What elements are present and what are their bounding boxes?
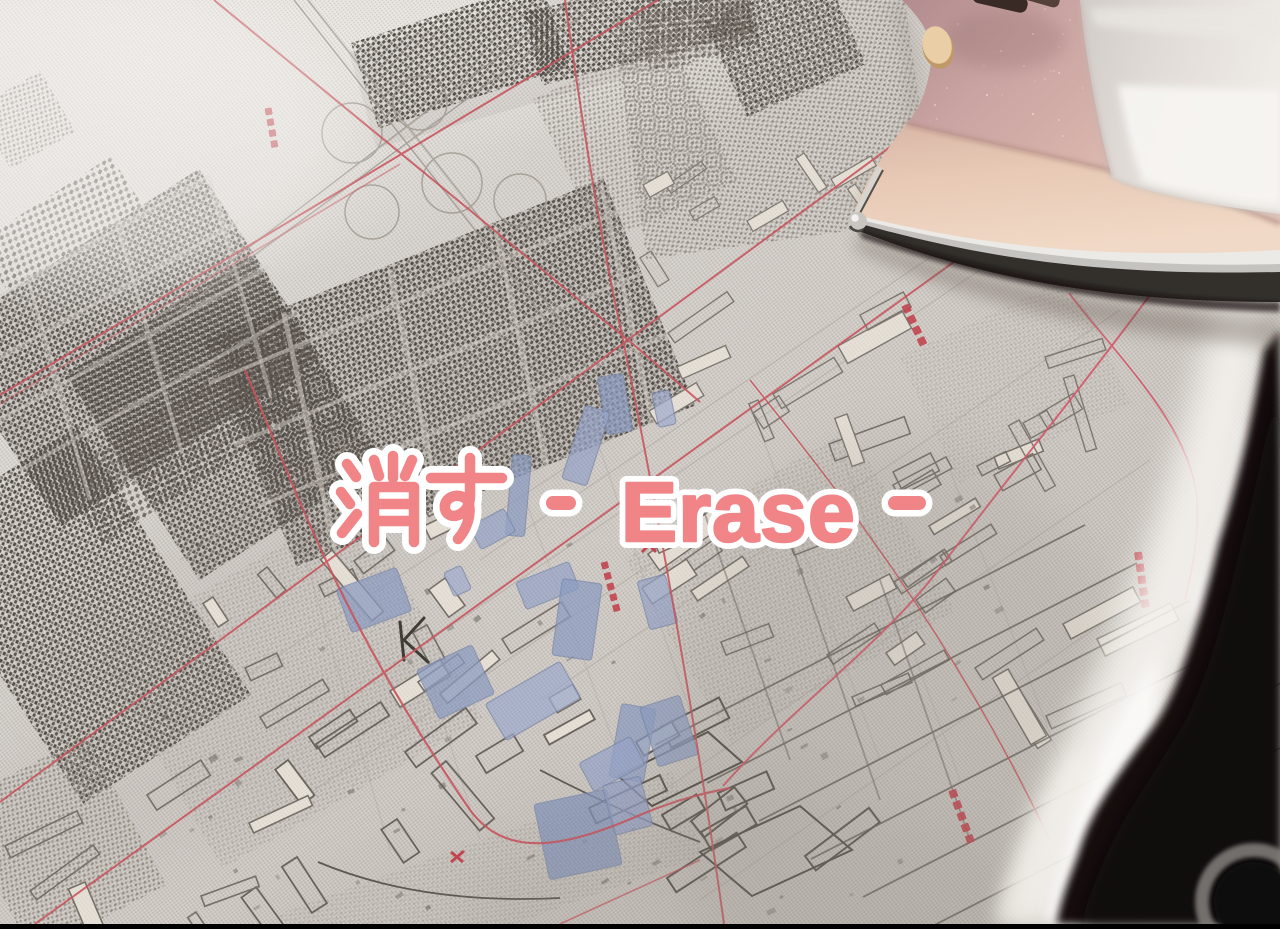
svg-text:Erase: Erase xyxy=(621,465,856,559)
